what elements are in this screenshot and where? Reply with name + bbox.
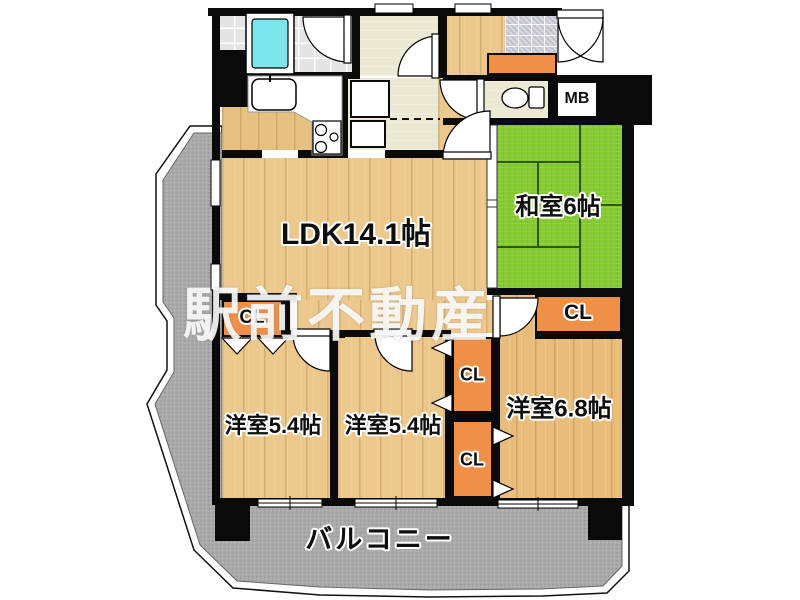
kitchen-sink-icon [252,79,296,110]
room-western-middle-label: 洋室5.4帖 [345,408,442,440]
closet-mid-upper-label: CL [460,365,484,386]
watermark: 駅前不動産 [183,268,493,352]
bath-door-leaf [344,15,351,63]
western-right-door-arc [500,298,538,336]
bathtub-icon [246,13,294,74]
balcony-label: バルコニー [305,518,454,557]
stove-icon [313,121,341,154]
window [211,160,220,206]
closet-right-top-label: CL [564,301,592,325]
room-washitsu-label: 和室6帖 [515,187,600,222]
meter-box-label: MB [565,90,590,108]
ldk-door-leaf [443,152,491,159]
bath-door-arc [303,17,348,62]
closet-mid-lower-label: CL [460,450,484,471]
western-right-door-leaf [493,296,500,338]
toilet-icon [502,87,544,108]
washroom-door-leaf [432,34,439,78]
room-western-left-label: 洋室5.4帖 [225,408,322,440]
window [375,4,413,13]
entrance-door-leaf [557,10,603,18]
bifold-door [493,427,513,445]
floorplan-canvas: LDK14.1帖 和室6帖 洋室5.4帖 洋室5.4帖 洋室6.8帖 バルコニー… [0,0,800,600]
bifold-door [493,480,513,498]
ldk-door-arc [443,111,490,158]
window [455,4,491,13]
entrance-door-arc [558,17,603,62]
room-ldk-label: LDK14.1帖 [281,209,431,253]
room-western-right-label: 洋室6.8帖 [506,389,611,424]
